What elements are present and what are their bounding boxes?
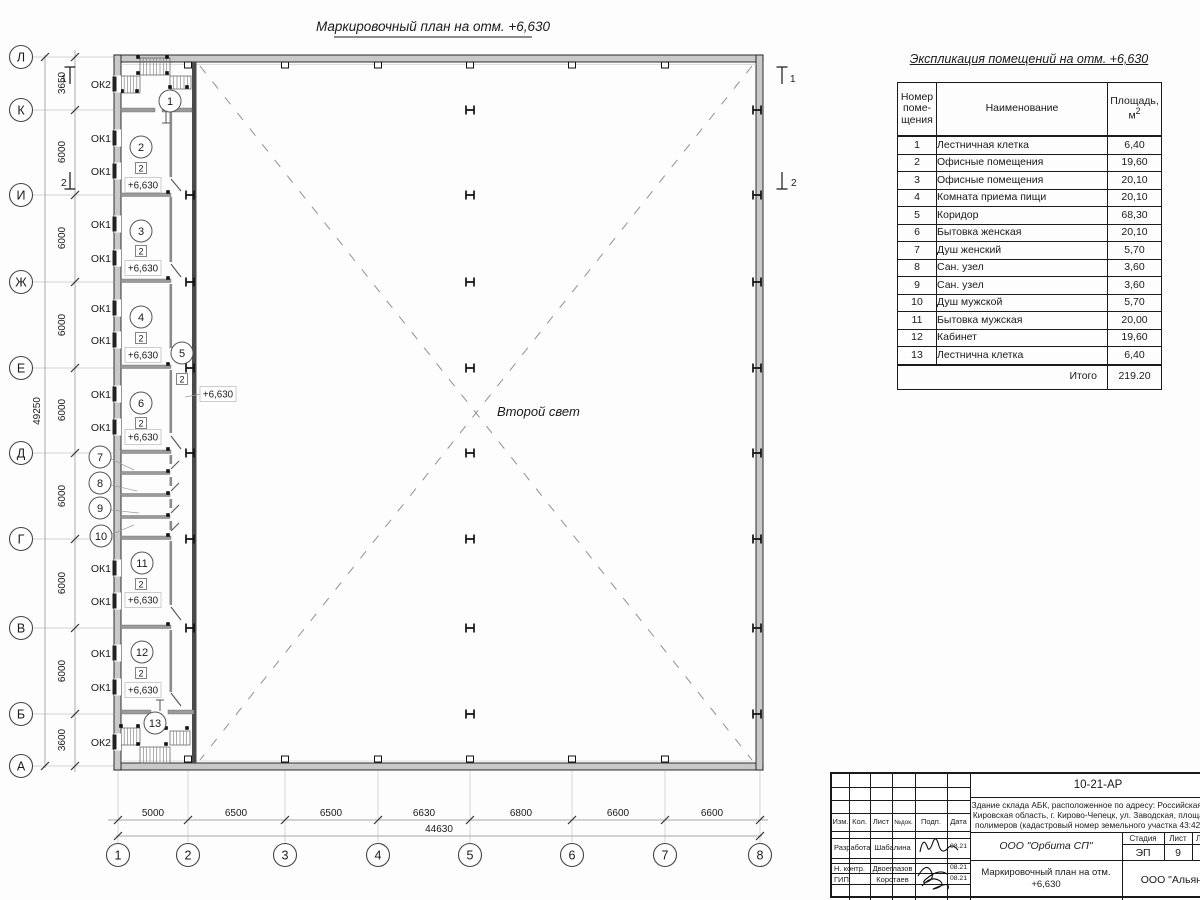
door-leaf [171, 483, 179, 491]
room-east-wall [170, 499, 173, 508]
void-cross-dashed [200, 66, 752, 760]
schedule-total-row: Итого 219.20 [898, 365, 1162, 390]
room-east-wall [170, 477, 173, 486]
room-east-wall [170, 521, 173, 530]
window-tag: ОК2 [91, 79, 111, 91]
column-square [136, 724, 140, 728]
partition-wall [121, 536, 171, 540]
column-square [164, 742, 168, 746]
axis-label: Д [17, 447, 26, 461]
steel-column-icon [466, 364, 474, 373]
window-tag: ОК1 [91, 389, 111, 401]
stair-treads [173, 731, 186, 745]
door-leaf [171, 505, 179, 513]
room-area-cell: 68,30 [1108, 207, 1162, 225]
column-square [165, 55, 169, 59]
column-square [136, 55, 140, 59]
tb-col-list: Лист [870, 817, 892, 826]
tb-col-ndok: №док. [892, 819, 915, 826]
column-square [166, 513, 170, 517]
level-mark-tag: +6,630 [128, 596, 159, 607]
partition-wall [121, 108, 155, 112]
table-row: 1Лестничная клетка6,40 [898, 136, 1162, 154]
tb-name-developer: Шабалина [870, 843, 915, 852]
column-square [166, 622, 170, 626]
room-type-number: 2 [138, 334, 143, 344]
stage-value: ЭП [1122, 847, 1164, 859]
corridor-east-wall [192, 62, 197, 763]
room-area-cell: 20,10 [1108, 224, 1162, 242]
stair-flight [140, 747, 170, 763]
room-number: 6 [138, 398, 144, 410]
room-number: 1 [167, 96, 173, 108]
room-type-number: 2 [179, 375, 184, 385]
window-tag: ОК1 [91, 253, 111, 265]
document-code: 10-21-АР [970, 779, 1200, 791]
steel-columns [185, 62, 762, 762]
axis-label: 5 [467, 849, 474, 863]
dimension-label: 6630 [413, 808, 436, 819]
axis-label: Е [17, 362, 25, 376]
column-square [136, 71, 140, 75]
window-icon [113, 680, 117, 695]
column-square [185, 85, 189, 89]
room-number: 2 [138, 142, 144, 154]
column-square [136, 742, 140, 746]
stair-treads [124, 76, 137, 93]
room-area-cell: 6,40 [1108, 136, 1162, 154]
project-description-1: Здание склада АБК, расположенное по адре… [970, 800, 1200, 810]
wall-column-icon [185, 756, 192, 762]
window-tag: ОК1 [91, 166, 111, 178]
axis-label: 7 [662, 849, 669, 863]
room-number: 12 [136, 647, 148, 659]
column-square [166, 190, 170, 194]
room-number: 3 [138, 226, 144, 238]
door-leaf [171, 264, 181, 277]
signature-icon [912, 830, 974, 894]
doors [156, 112, 181, 711]
plan-title: Маркировочный план на отм. +6,630 [316, 19, 551, 34]
dimension-label: 6000 [57, 226, 68, 249]
axis-label: Г [18, 533, 25, 547]
col-header-area: Площадь,м2 [1108, 83, 1162, 137]
column-square [166, 469, 170, 473]
dimension-total-label: 49250 [32, 397, 43, 425]
room-number: 5 [179, 348, 185, 360]
tb-col-kol: Кол. [849, 817, 870, 826]
axis-label: Л [17, 51, 25, 65]
tb-col-podp: Подп. [915, 817, 947, 826]
table-row: 3Офисные помещения20,10 [898, 172, 1162, 190]
dimension-label: 6500 [320, 808, 343, 819]
window-icon [113, 561, 117, 576]
schedule-body: 1Лестничная клетка6,402Офисные помещения… [898, 136, 1162, 365]
room-number-cell: 5 [898, 207, 937, 225]
window-tag: ОК1 [91, 133, 111, 145]
window-icon [113, 77, 117, 92]
table-row: 13Лестнична клетка6,40 [898, 347, 1162, 365]
door-leaf [162, 112, 170, 123]
stair-treads [124, 728, 137, 745]
project-description-2: Кировская область, г. Кирово-Чепецк, ул.… [970, 810, 1200, 820]
section-mark-number: 1 [61, 74, 67, 85]
axis-label: 6 [569, 849, 576, 863]
room-type-number: 2 [138, 419, 143, 429]
window-icon [113, 301, 117, 316]
room-number-cell: 11 [898, 312, 937, 330]
room-area-cell: 6,40 [1108, 347, 1162, 365]
total-label: Итого [898, 365, 1108, 390]
room-number: 13 [149, 718, 161, 730]
door-leaf [171, 693, 181, 706]
table-row: 6Бытовка женская20,10 [898, 224, 1162, 242]
dimension-label: 6000 [57, 313, 68, 336]
room-number-cell: 3 [898, 172, 937, 190]
room-number-cell: 4 [898, 189, 937, 207]
room-east-wall [170, 541, 173, 605]
room-number: 7 [97, 452, 103, 464]
schedule-header-row: Номер поме- щения Наименование Площадь,м… [898, 83, 1162, 137]
section-mark-number: 1 [790, 74, 796, 85]
column-square [185, 726, 189, 730]
table-row: 11Бытовка мужская20,00 [898, 312, 1162, 330]
room-area-cell: 3,60 [1108, 259, 1162, 277]
wall-column-icon [662, 756, 669, 762]
room-number-cell: 12 [898, 329, 937, 347]
dimension-total-label: 44630 [425, 824, 453, 835]
wall-column-icon [282, 62, 289, 68]
section-mark-number: 2 [61, 178, 67, 189]
room-area-cell: 20,10 [1108, 189, 1162, 207]
column-square [135, 89, 139, 93]
room-east-wall [170, 370, 173, 433]
axis-label: 2 [185, 849, 192, 863]
table-row: 2Офисные помещения19,60 [898, 154, 1162, 172]
dimension-label: 6000 [57, 659, 68, 682]
room-name-cell: Сан. узел [937, 277, 1108, 295]
sheet-title: Маркировочный план на отм. +6,630 [974, 867, 1118, 891]
room-number-cell: 6 [898, 224, 937, 242]
room-east-walls [170, 110, 173, 692]
wall-column-icon [185, 62, 192, 68]
list-value: 9 [1164, 847, 1192, 859]
steel-column-icon [466, 191, 474, 200]
outer-walls [114, 55, 763, 770]
room-area-cell: 19,60 [1108, 329, 1162, 347]
window-tag: ОК1 [91, 563, 111, 575]
table-row: 9Сан. узел3,60 [898, 277, 1162, 295]
room-type-number: 2 [138, 580, 143, 590]
tb-name-ncontrol: Двоеглазов [870, 864, 915, 873]
wall-column-icon [569, 756, 576, 762]
sheet: { "plan": { "title": "Маркировочный план… [0, 0, 1200, 900]
room-type-number: 2 [138, 247, 143, 257]
table-row: 8Сан. узел3,60 [898, 259, 1162, 277]
column-square [166, 533, 170, 537]
dimension-label: 6800 [510, 808, 533, 819]
steel-column-icon [466, 278, 474, 287]
steel-column-icon [466, 449, 474, 458]
room-name-cell: Бытовка женская [937, 224, 1108, 242]
window-tag: ОК1 [91, 682, 111, 694]
axis-label: Б [17, 708, 25, 722]
table-row: 7Душ женский5,70 [898, 242, 1162, 260]
wall-column-icon [467, 756, 474, 762]
contractor-org: ООО "Альянс [1122, 874, 1200, 886]
window-icon [113, 387, 117, 402]
tb-col-data: Дата [947, 817, 970, 826]
room-number: 11 [136, 558, 147, 570]
column-square [166, 362, 170, 366]
room-name-cell: Коридор [937, 207, 1108, 225]
room-number: 8 [97, 478, 103, 490]
window-icon [113, 420, 117, 435]
room-name-cell: Комната приема пищи [937, 189, 1108, 207]
table-row: 5Коридор68,30 [898, 207, 1162, 225]
room-east-wall [170, 455, 173, 464]
axis-label: 4 [375, 849, 382, 863]
section-mark-number: 2 [791, 178, 797, 189]
room-name-cell: Офисные помещения [937, 172, 1108, 190]
window-tag: ОК1 [91, 422, 111, 434]
wall-column-icon [467, 62, 474, 68]
axis-label: 8 [757, 849, 764, 863]
steel-column-icon [466, 710, 474, 719]
room-area-cell: 20,10 [1108, 172, 1162, 190]
room-name-cell: Бытовка мужская [937, 312, 1108, 330]
axis-label: И [17, 189, 26, 203]
axis-label: 1 [115, 849, 122, 863]
window-icon [113, 131, 117, 146]
wall-column-icon [375, 756, 382, 762]
room-type-number: 2 [138, 164, 143, 174]
room-name-cell: Сан. узел [937, 259, 1108, 277]
level-mark-tag: +6,630 [203, 390, 234, 401]
axis-label: 3 [282, 849, 289, 863]
tb-role-developer: Разработал [834, 843, 870, 852]
level-mark-tag: +6,630 [128, 433, 159, 444]
door-leaf [156, 700, 164, 711]
partition-wall [121, 279, 171, 283]
axis-label: В [17, 622, 25, 636]
axis-label: Ж [15, 276, 27, 290]
partition-wall [121, 516, 170, 519]
dimension-label: 6000 [57, 398, 68, 421]
window-icon [113, 217, 117, 232]
col-header-number: Номер поме- щения [898, 83, 937, 137]
room-east-wall [170, 284, 173, 348]
room-number-cell: 2 [898, 154, 937, 172]
column-square [119, 724, 123, 728]
title-block: Изм. Кол. Лист №док. Подп. Дата Разработ… [830, 772, 1200, 898]
window-icon [113, 333, 117, 348]
column-square [166, 491, 170, 495]
lists-value: 1 [1192, 847, 1200, 859]
window-tag: ОК2 [91, 737, 111, 749]
dimension-label: 3600 [57, 728, 68, 751]
window-icon [113, 735, 117, 750]
room-name-cell: Душ мужской [937, 294, 1108, 312]
room-number-cell: 8 [898, 259, 937, 277]
window-tag: ОК1 [91, 303, 111, 315]
column-square [166, 447, 170, 451]
steel-column-icon [466, 535, 474, 544]
room-number-cell: 10 [898, 294, 937, 312]
axis-bubbles: ЛКИЖЕДГВБА12345678 [10, 46, 772, 867]
window-tag: ОК1 [91, 596, 111, 608]
room-area-cell: 3,60 [1108, 277, 1162, 295]
partition-wall [121, 625, 171, 629]
partition-wall [121, 193, 171, 197]
axis-label: К [17, 104, 25, 118]
partition-wall [121, 472, 170, 475]
room-area-cell: 20,00 [1108, 312, 1162, 330]
level-mark-tag: +6,630 [128, 181, 159, 192]
table-row: 10Душ мужской5,70 [898, 294, 1162, 312]
dimension-label: 5000 [142, 808, 165, 819]
wall-column-icon [282, 756, 289, 762]
door-leaf [171, 607, 181, 620]
list-label: Лист [1164, 834, 1192, 843]
dimension-label: 6600 [701, 808, 724, 819]
project-description-3: полимеров (кадастровый номер земельного … [970, 820, 1200, 830]
room-number: 4 [138, 312, 144, 324]
dimension-label: 6000 [57, 571, 68, 594]
level-mark-tag: +6,630 [128, 351, 159, 362]
door-leaf [171, 523, 179, 531]
door-leaf [171, 436, 181, 449]
window-icon [113, 646, 117, 661]
design-org: ООО "Орбита СП" [970, 840, 1122, 852]
column-square [168, 85, 172, 89]
room-number: 10 [95, 531, 107, 543]
stage-label: Стадия [1122, 834, 1164, 843]
room-area-cell: 5,70 [1108, 242, 1162, 260]
partition-wall [168, 710, 194, 714]
dimension-label: 6600 [607, 808, 630, 819]
window-icon [113, 164, 117, 179]
stairs [119, 55, 191, 763]
partition-wall [121, 710, 151, 714]
room-type-number: 2 [138, 669, 143, 679]
steel-column-icon [466, 106, 474, 115]
dimension-label: 6000 [57, 140, 68, 163]
window-tag: ОК1 [91, 335, 111, 347]
room-name-cell: Офисные помещения [937, 154, 1108, 172]
second-light-label: Второй свет [497, 404, 580, 419]
table-row: 12Кабинет19,60 [898, 329, 1162, 347]
door-leaf [171, 461, 179, 469]
level-mark-tag: +6,630 [128, 264, 159, 275]
partition-wall [121, 494, 170, 497]
tb-col-izm: Изм. [832, 817, 849, 826]
room-number-cell: 13 [898, 347, 937, 365]
partition-wall [121, 365, 171, 369]
wall-column-icon [375, 62, 382, 68]
table-row: 4Комната приема пищи20,10 [898, 189, 1162, 207]
window-tag: ОК1 [91, 219, 111, 231]
level-mark-tag: +6,630 [128, 686, 159, 697]
schedule-title: Экспликация помещений на отм. +6,630 [893, 52, 1165, 66]
room-area-cell: 19,60 [1108, 154, 1162, 172]
dimension-label: 6000 [57, 484, 68, 507]
col-header-name: Наименование [937, 83, 1108, 137]
floor-plan-drawing: Маркировочный план на отм. +6,630 365060… [0, 0, 830, 900]
window-icon [113, 594, 117, 609]
room-east-wall [170, 110, 173, 177]
room-number-cell: 1 [898, 136, 937, 154]
room-name-cell: Кабинет [937, 329, 1108, 347]
room-area-cell: 5,70 [1108, 294, 1162, 312]
room-east-wall [170, 197, 173, 262]
window-icon [113, 251, 117, 266]
tb-role-gip: ГИП [834, 875, 870, 884]
wall-column-icon [569, 62, 576, 68]
dimension-label: 6500 [225, 808, 248, 819]
lists-label: Листов [1192, 834, 1200, 843]
room-east-wall [170, 630, 173, 692]
wall-column-icon [662, 62, 669, 68]
tb-name-gip: Коротаев [870, 875, 915, 884]
room-name-cell: Лестнична клетка [937, 347, 1108, 365]
room-schedule-table: Номер поме- щения Наименование Площадь,м… [897, 82, 1162, 390]
room-name-cell: Душ женский [937, 242, 1108, 260]
room-number-cell: 9 [898, 277, 937, 295]
steel-column-icon [466, 624, 474, 633]
partition-wall [121, 450, 171, 454]
tb-role-ncontrol: Н. контр. [834, 864, 870, 873]
partitions [121, 108, 194, 714]
stair-treads [143, 747, 166, 763]
room-number: 9 [97, 503, 103, 515]
column-square [165, 71, 169, 75]
window-tag: ОК1 [91, 648, 111, 660]
room-name-cell: Лестничная клетка [937, 136, 1108, 154]
axis-label: А [17, 760, 26, 774]
room-number-cell: 7 [898, 242, 937, 260]
door-leaf [171, 179, 181, 191]
column-square [166, 276, 170, 280]
total-value: 219.20 [1108, 365, 1162, 390]
